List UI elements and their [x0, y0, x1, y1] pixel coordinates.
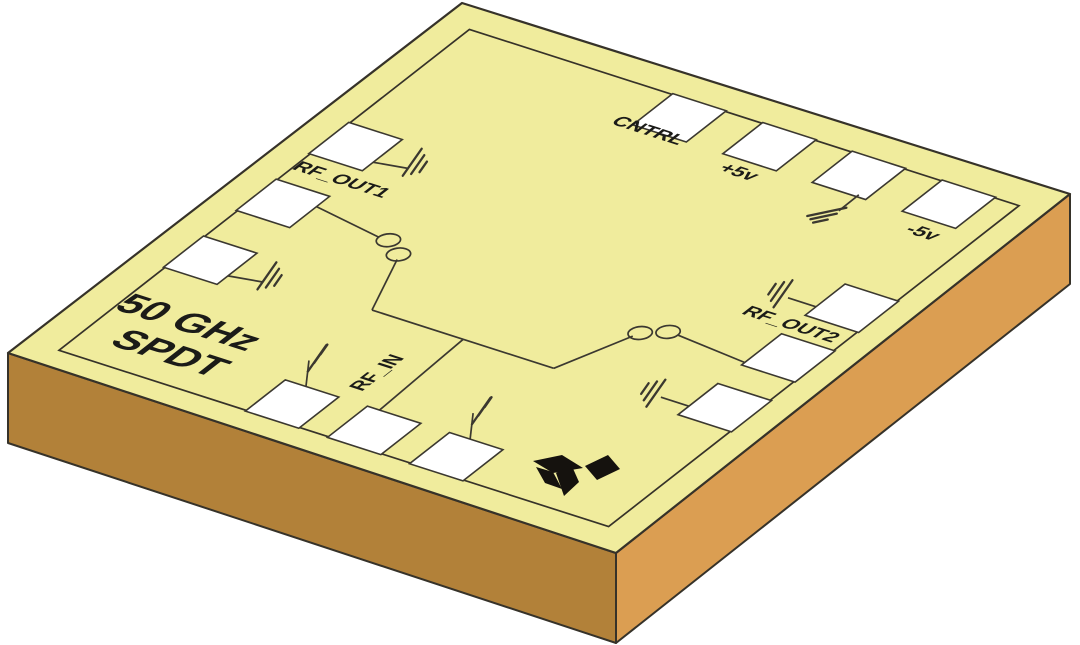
chip-illustration: CNTRL+5v-5vRF_OUT1RF_OUT2RF_IN50 GHzSPDT — [0, 0, 1080, 645]
chip-illustration-stage: CNTRL+5v-5vRF_OUT1RF_OUT2RF_IN50 GHzSPDT — [0, 0, 1080, 645]
